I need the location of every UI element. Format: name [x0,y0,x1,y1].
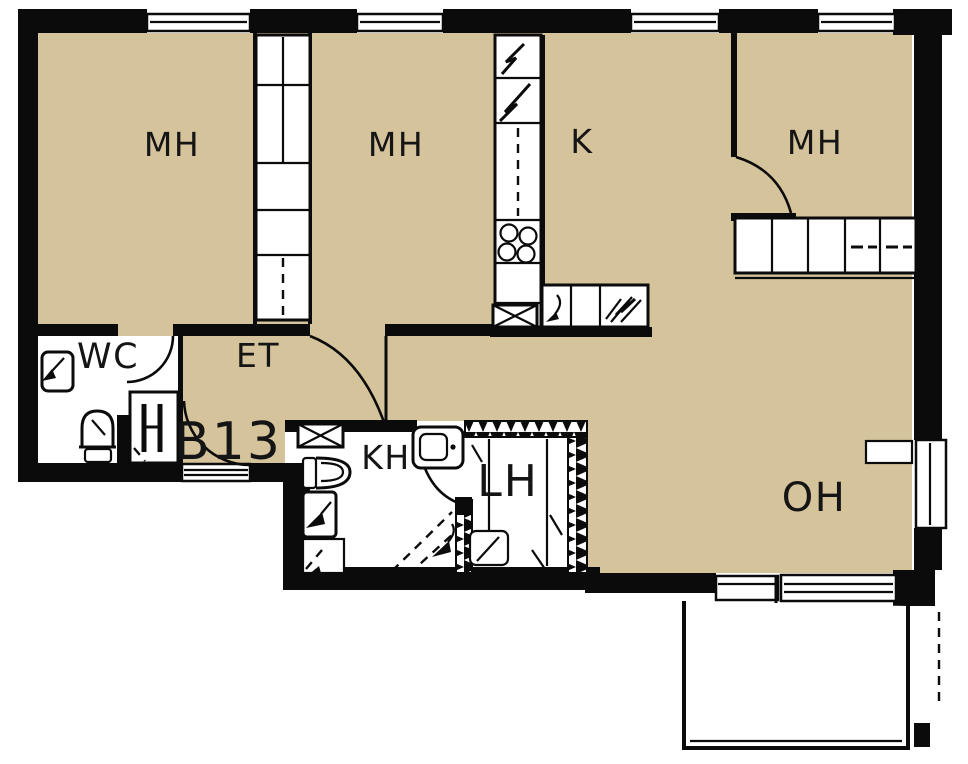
shower-icon [392,512,465,574]
corner-cabinet-icon [493,305,537,327]
washbasin-icon [413,427,463,468]
corner-block [893,9,952,35]
kitchen-counter [542,285,648,327]
wc-sink-icon [42,352,73,391]
label-bedroom-1: MH [144,125,200,164]
label-wc: WC [77,337,139,377]
window-bedroom2-icon [357,14,443,31]
window-bedroom3-icon [818,14,895,31]
bathroom-toilet-icon [303,458,350,488]
label-kitchen: K [570,122,593,161]
wc-toilet-icon [79,411,116,462]
appliance-reservation-icon [303,539,344,575]
label-bedroom-2: MH [368,125,424,164]
sauna-door-post [455,497,472,515]
window-balcony-icon [781,575,896,601]
floor-plan-drawing: MH MH K MH WC ET B13 KH LH OH [0,0,968,764]
label-living-room: OH [782,475,847,521]
vent-cabinet-icon [298,424,343,447]
hall-closet-icon [130,392,178,463]
balcony-outline [684,601,908,748]
label-bedroom-3: MH [787,123,843,162]
window-sill [866,441,912,463]
washing-machine-icon [303,492,336,537]
window-bedroom1-icon [147,14,250,31]
wardrobe-bedroom3-icon [735,218,916,278]
balcony-wall-stub [914,723,930,747]
label-apartment-number: B13 [174,412,282,472]
label-bathroom: KH [361,438,410,477]
label-sauna: LH [477,456,539,507]
wardrobe-bedrooms-icon [256,35,310,320]
balcony [684,601,939,748]
sauna-stove-icon [470,531,508,565]
label-entry: ET [236,336,280,375]
floor-plan: MH MH K MH WC ET B13 KH LH OH [0,0,968,764]
window-kitchen-icon [631,14,719,31]
sauna-wall-hatch-top [465,421,587,437]
sauna-wall-hatch-right [568,437,587,573]
